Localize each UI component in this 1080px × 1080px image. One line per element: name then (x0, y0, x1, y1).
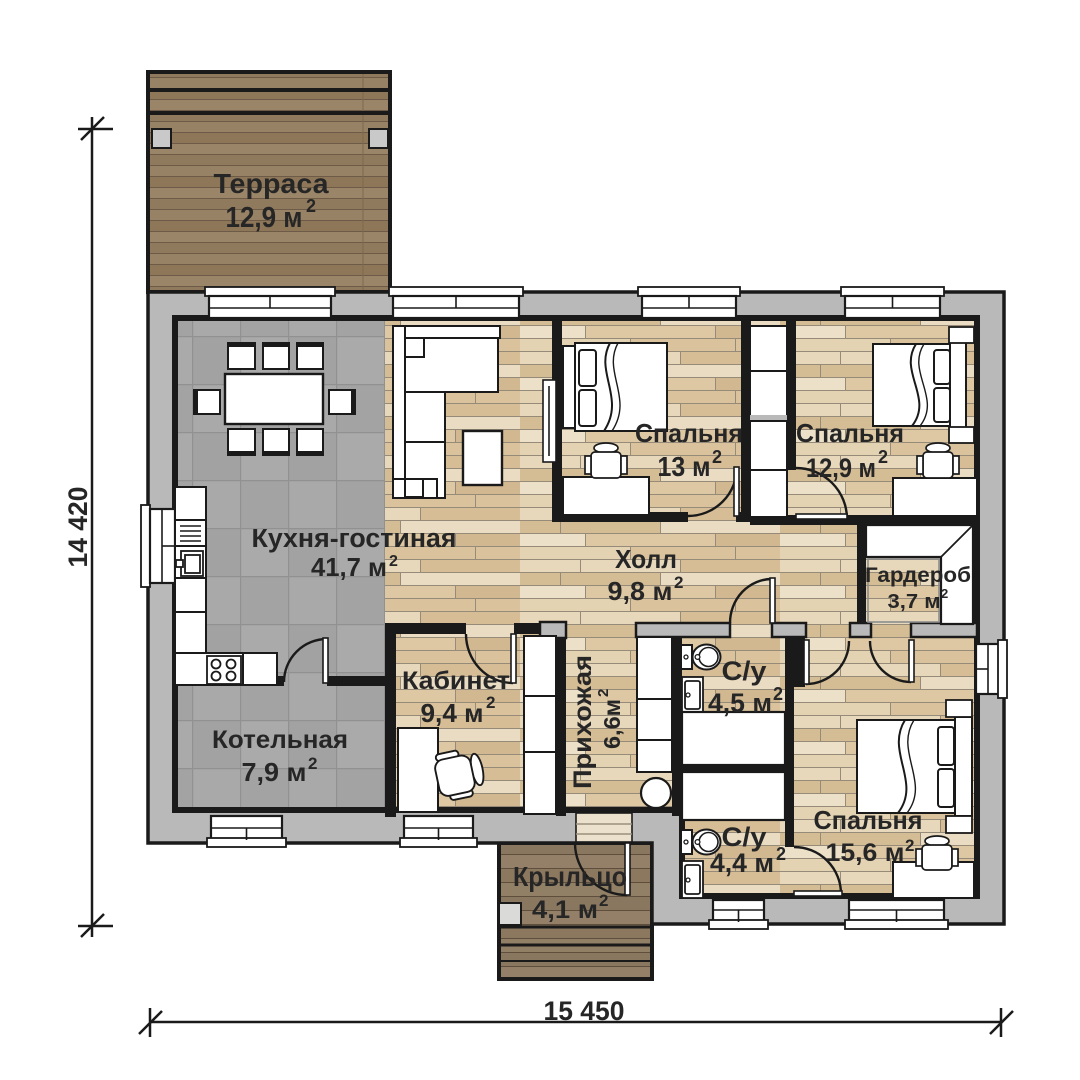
svg-text:2: 2 (308, 754, 317, 773)
svg-text:Терраса: Терраса (214, 168, 329, 199)
svg-text:2: 2 (595, 689, 612, 697)
svg-text:4,1 м: 4,1 м (532, 896, 598, 924)
svg-text:Кухня-гостиная: Кухня-гостиная (252, 525, 457, 553)
svg-text:2: 2 (776, 844, 786, 864)
svg-text:13 м: 13 м (658, 451, 711, 482)
svg-text:С/у: С/у (722, 656, 767, 686)
svg-text:Крыльцо: Крыльцо (513, 861, 627, 892)
svg-text:41,7 м: 41,7 м (311, 552, 387, 582)
svg-text:Прихожая: Прихожая (569, 655, 597, 789)
svg-text:2: 2 (878, 447, 888, 467)
svg-text:12,9 м: 12,9 м (226, 202, 303, 234)
svg-text:Гардероб: Гардероб (865, 563, 971, 587)
svg-text:Спальня: Спальня (635, 418, 743, 448)
svg-text:15,6 м: 15,6 м (826, 839, 905, 867)
svg-text:2: 2 (941, 586, 948, 601)
svg-text:9,8 м: 9,8 м (608, 576, 673, 606)
svg-text:Спальня: Спальня (796, 418, 904, 448)
svg-text:2: 2 (389, 553, 398, 570)
svg-text:4,5 м: 4,5 м (708, 688, 772, 718)
svg-text:2: 2 (599, 891, 608, 910)
svg-text:2: 2 (712, 447, 722, 467)
svg-text:7,9 м: 7,9 м (242, 757, 307, 787)
svg-text:12,9 м: 12,9 м (806, 453, 876, 483)
svg-text:Холл: Холл (615, 544, 677, 574)
svg-text:Спальня: Спальня (814, 805, 923, 835)
svg-text:2: 2 (905, 836, 914, 855)
svg-text:3,7 м: 3,7 м (888, 591, 941, 613)
svg-text:2: 2 (486, 693, 495, 712)
svg-text:6,6м: 6,6м (599, 699, 625, 749)
svg-text:2: 2 (773, 684, 783, 704)
svg-text:2: 2 (674, 573, 683, 592)
svg-text:14 420: 14 420 (63, 487, 93, 568)
svg-text:Котельная: Котельная (212, 726, 348, 754)
svg-text:4,4 м: 4,4 м (710, 848, 774, 878)
svg-text:2: 2 (306, 196, 316, 216)
svg-text:15 450: 15 450 (544, 996, 625, 1026)
svg-text:9,4 м: 9,4 м (421, 698, 484, 728)
svg-text:Кабинет: Кабинет (402, 667, 510, 695)
